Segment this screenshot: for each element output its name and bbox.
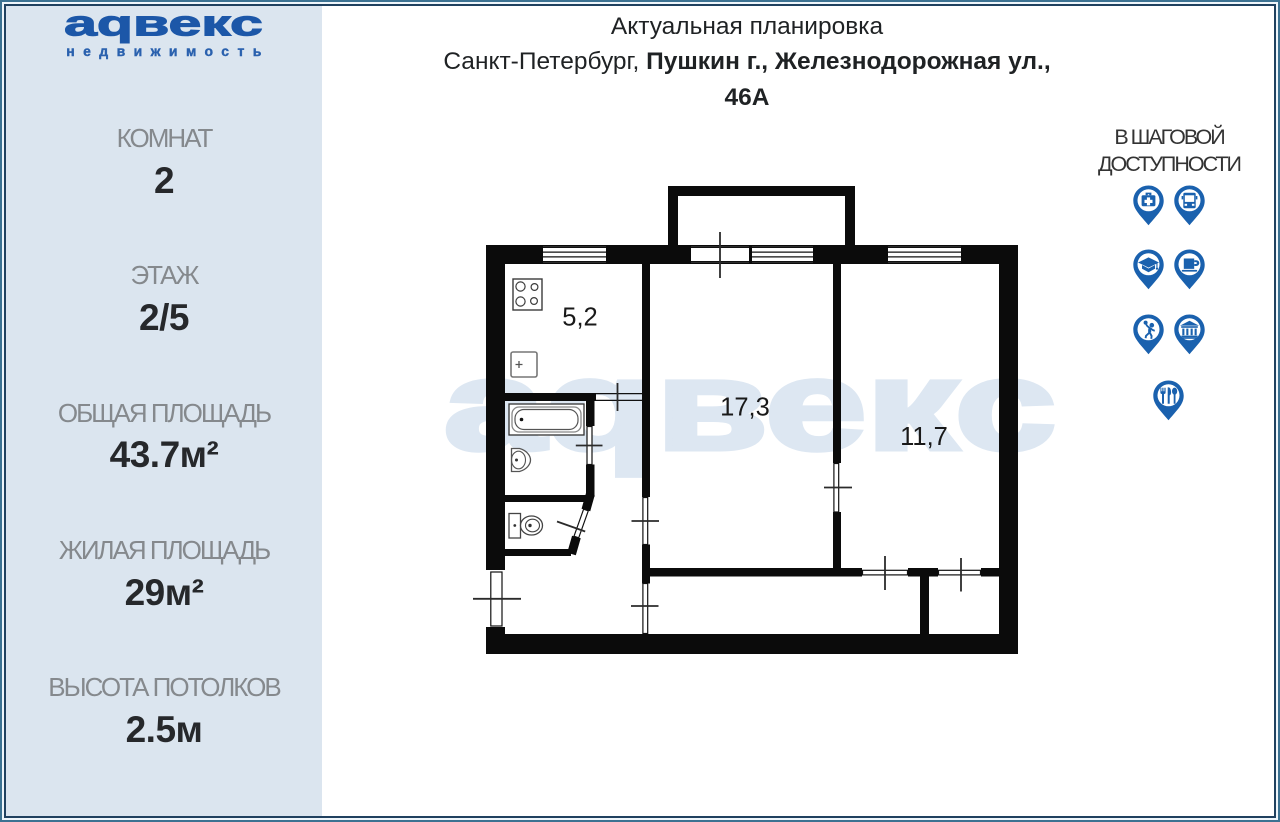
svg-text:аqвекс: аqвекс xyxy=(64,6,263,44)
svg-text:недвижимость: недвижимость xyxy=(66,43,269,59)
